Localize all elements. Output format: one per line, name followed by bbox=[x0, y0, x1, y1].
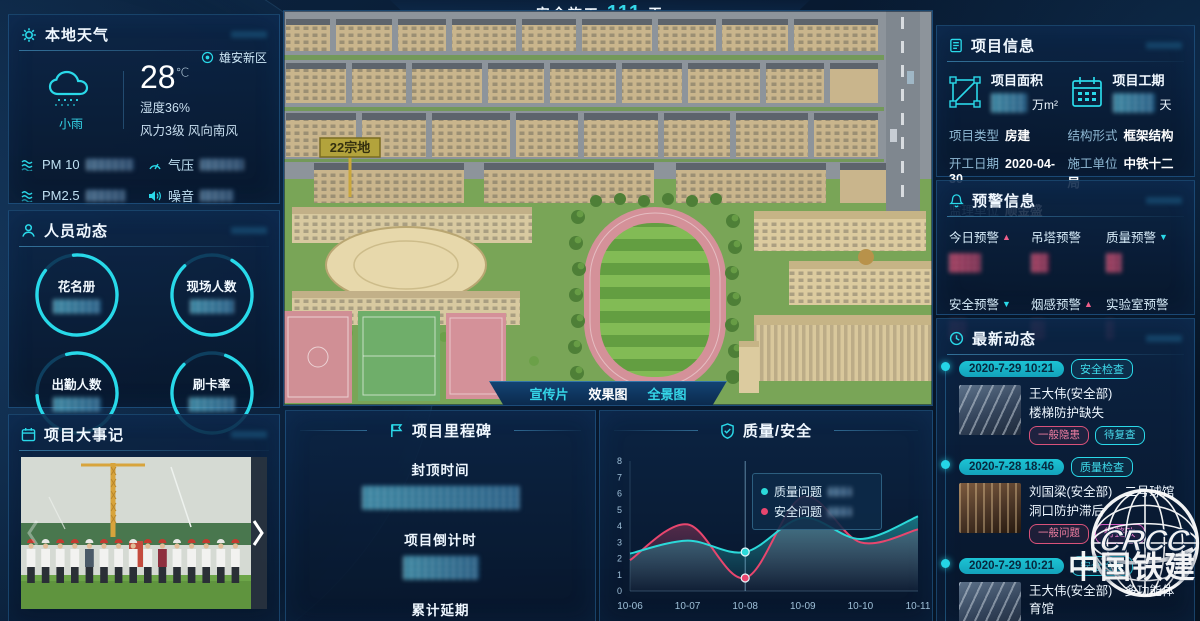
redacted-value bbox=[86, 159, 134, 171]
location-chip: 雄安新区 bbox=[201, 49, 267, 66]
tab-render-view[interactable]: 效果图 bbox=[588, 384, 627, 403]
svg-text:10-09: 10-09 bbox=[790, 601, 816, 612]
activity-entry[interactable]: 2020-7-29 10:21 安全检查 王大伟(安全部)多功能体育馆 楼梯防护… bbox=[959, 556, 1184, 621]
svg-text:2: 2 bbox=[617, 554, 622, 564]
svg-text:22宗地: 22宗地 bbox=[330, 140, 370, 155]
trend-up-icon: ▲ bbox=[1002, 232, 1011, 242]
svg-text:0: 0 bbox=[617, 586, 622, 596]
chart-tooltip: 质量问题 安全问题 bbox=[752, 473, 882, 530]
panel-deco bbox=[1146, 335, 1182, 342]
status-tag: 待整改 bbox=[1095, 524, 1145, 544]
temperature-value: 28 bbox=[140, 59, 176, 95]
redacted-value bbox=[53, 397, 101, 412]
panel-deco bbox=[231, 227, 267, 234]
air-wave-icon bbox=[21, 159, 36, 171]
redacted-value bbox=[86, 190, 126, 202]
milestone-delay: 累计延期 bbox=[286, 599, 595, 621]
field-structure: 结构形式框架结构 bbox=[1068, 125, 1183, 144]
dashboard-root: 安全施工 111 天 本地天气 雄安新区 小雨 bbox=[0, 0, 1200, 621]
legend-safety-label: 安全问题 bbox=[774, 503, 822, 520]
project-info-title: 项目信息 bbox=[971, 35, 1035, 56]
redacted-value bbox=[53, 299, 101, 314]
svg-text:4: 4 bbox=[617, 521, 622, 531]
site-3d-render-viewer[interactable]: 22宗地 宣传片 效果图 全景图 bbox=[283, 10, 933, 406]
entry-type-badge: 质量检查 bbox=[1071, 457, 1133, 477]
svg-text:10-07: 10-07 bbox=[675, 601, 701, 612]
warning-crane: 吊塔预警 bbox=[1031, 227, 1100, 278]
activity-entry[interactable]: 2020-7-28 18:46 质量检查 刘国梁(安全部)二号球馆 洞口防护滞后… bbox=[959, 457, 1184, 543]
panel-latest-activity: 最新动态 2020-7-29 10:21 安全检查 王大伟(安全部) 楼梯防护缺… bbox=[936, 318, 1195, 621]
svg-text:10-08: 10-08 bbox=[732, 601, 758, 612]
weather-panel-title: 本地天气 bbox=[45, 24, 109, 45]
panel-deco bbox=[231, 31, 267, 38]
air-wave-icon bbox=[21, 190, 36, 202]
entry-date-badge: 2020-7-28 18:46 bbox=[959, 459, 1064, 475]
entry-type-badge: 安全检查 bbox=[1071, 556, 1133, 576]
wind-text: 风力3级 风向南风 bbox=[140, 120, 238, 139]
carousel-prev-button[interactable] bbox=[25, 519, 41, 547]
panel-project-events: 项目大事记 bbox=[8, 414, 280, 621]
speaker-icon bbox=[148, 190, 162, 202]
svg-text:10-11: 10-11 bbox=[906, 601, 931, 612]
redacted-value bbox=[200, 190, 234, 202]
calendar-icon bbox=[1069, 74, 1105, 110]
entry-date-badge: 2020-7-29 10:21 bbox=[959, 361, 1064, 377]
svg-text:5: 5 bbox=[617, 505, 622, 515]
ring-roster: 花名册 bbox=[31, 249, 123, 341]
redacted-value bbox=[949, 253, 981, 273]
ring-onsite: 现场人数 bbox=[166, 249, 258, 341]
quality-safety-chart: 01234567810-0610-0710-0810-0910-1010-11 … bbox=[600, 447, 932, 617]
entry-photo bbox=[959, 582, 1021, 621]
redacted-value bbox=[200, 159, 244, 171]
person-icon bbox=[21, 223, 36, 238]
area-measure-icon bbox=[947, 74, 983, 110]
warning-today: 今日预警▲ bbox=[949, 227, 1025, 278]
carousel-next-button[interactable] bbox=[250, 519, 266, 547]
panel-project-info: 项目信息 项目面积 万m² 项目工期 天 项目类型房建 结构形式框架结构 开工日… bbox=[936, 25, 1195, 177]
viewer-mode-tabs: 宣传片 效果图 全景图 bbox=[489, 381, 727, 405]
svg-text:10-06: 10-06 bbox=[617, 601, 643, 612]
stat-project-duration: 项目工期 天 bbox=[1069, 70, 1185, 113]
clock-icon bbox=[949, 331, 964, 346]
document-icon bbox=[949, 38, 963, 53]
redacted-value bbox=[1031, 253, 1049, 273]
svg-text:7: 7 bbox=[617, 472, 622, 482]
trend-down-icon: ▼ bbox=[1159, 232, 1168, 242]
quality-panel-title: 质量/安全 bbox=[743, 420, 812, 441]
field-project-type: 项目类型房建 bbox=[949, 125, 1064, 144]
redacted-value bbox=[991, 93, 1027, 113]
metric-pm10: PM 10 bbox=[21, 155, 140, 174]
redacted-value bbox=[362, 486, 520, 510]
milestone-countdown: 项目倒计时 bbox=[286, 529, 595, 585]
panel-deco bbox=[1146, 197, 1182, 204]
entry-photo bbox=[959, 483, 1021, 533]
svg-text:6: 6 bbox=[617, 489, 622, 499]
warnings-panel-title: 预警信息 bbox=[972, 190, 1036, 211]
svg-text:10-10: 10-10 bbox=[848, 601, 874, 612]
redacted-value bbox=[403, 556, 479, 580]
svg-text:1: 1 bbox=[617, 570, 622, 580]
redacted-value bbox=[190, 299, 234, 314]
metric-pm25: PM2.5 bbox=[21, 186, 140, 205]
redacted-value bbox=[828, 487, 852, 497]
activity-entry[interactable]: 2020-7-29 10:21 安全检查 王大伟(安全部) 楼梯防护缺失 一般隐… bbox=[959, 359, 1184, 445]
legend-quality-label: 质量问题 bbox=[774, 483, 822, 500]
redacted-value bbox=[1106, 253, 1122, 273]
calendar-icon bbox=[21, 427, 36, 442]
gauge-icon bbox=[148, 159, 162, 171]
redacted-value bbox=[1113, 93, 1155, 113]
panel-personnel: 人员动态 花名册 现场人数 出勤人数 刷卡率 bbox=[8, 210, 280, 408]
personnel-panel-title: 人员动态 bbox=[44, 220, 108, 241]
milestone-panel-title: 项目里程碑 bbox=[412, 420, 492, 441]
event-photo-carousel bbox=[21, 457, 267, 609]
shield-check-icon bbox=[720, 423, 735, 439]
bell-icon bbox=[949, 193, 964, 208]
svg-text:8: 8 bbox=[617, 456, 622, 466]
trend-down-icon: ▼ bbox=[1002, 299, 1011, 309]
metric-pressure: 气压 bbox=[148, 155, 267, 174]
panel-warnings: 预警信息 今日预警▲ 吊塔预警 质量预警▼ 安全预警▼ 烟感预警▲ bbox=[936, 180, 1195, 315]
chevron-left-icon bbox=[25, 519, 41, 547]
panel-local-weather: 本地天气 雄安新区 小雨 28℃ 湿度36% 风力3级 风向南风 bbox=[8, 14, 280, 204]
redacted-value bbox=[189, 397, 235, 412]
panel-deco bbox=[231, 431, 267, 438]
milestone-topping-time: 封顶时间 bbox=[286, 459, 595, 515]
milestone-group-photo bbox=[21, 457, 251, 609]
svg-text:3: 3 bbox=[617, 537, 622, 547]
metric-noise: 噪音 bbox=[148, 186, 267, 205]
panel-deco bbox=[1146, 42, 1182, 49]
events-panel-title: 项目大事记 bbox=[44, 424, 124, 445]
location-pin-icon bbox=[201, 51, 214, 64]
panel-quality-safety: 质量/安全 01234567810-0610-0710-0810-0910-10… bbox=[599, 410, 933, 621]
chevron-right-icon bbox=[250, 519, 266, 547]
temperature-unit: ℃ bbox=[176, 65, 189, 79]
hazard-tag: 一般隐患 bbox=[1029, 426, 1089, 446]
hazard-tag: 一般问题 bbox=[1029, 524, 1089, 544]
weather-condition: 小雨 bbox=[19, 115, 123, 132]
tab-promo-video[interactable]: 宣传片 bbox=[529, 384, 568, 403]
entry-photo bbox=[959, 385, 1021, 435]
humidity-text: 湿度36% bbox=[140, 97, 238, 116]
warning-quality: 质量预警▼ bbox=[1106, 227, 1182, 278]
redacted-value bbox=[828, 507, 852, 517]
activity-panel-title: 最新动态 bbox=[972, 328, 1036, 349]
stat-project-area: 项目面积 万m² bbox=[947, 70, 1063, 113]
panel-milestone: 项目里程碑 封顶时间 项目倒计时 累计延期 bbox=[285, 410, 596, 621]
aerial-render: 22宗地 bbox=[284, 11, 932, 405]
rain-cloud-icon bbox=[45, 68, 97, 108]
entry-date-badge: 2020-7-29 10:21 bbox=[959, 558, 1064, 574]
gear-icon bbox=[21, 27, 37, 43]
tab-panorama[interactable]: 全景图 bbox=[648, 384, 687, 403]
status-tag: 待复查 bbox=[1095, 426, 1145, 446]
location-label: 雄安新区 bbox=[219, 49, 267, 66]
trend-up-icon: ▲ bbox=[1084, 299, 1093, 309]
flag-icon bbox=[389, 423, 404, 438]
entry-type-badge: 安全检查 bbox=[1071, 359, 1133, 379]
